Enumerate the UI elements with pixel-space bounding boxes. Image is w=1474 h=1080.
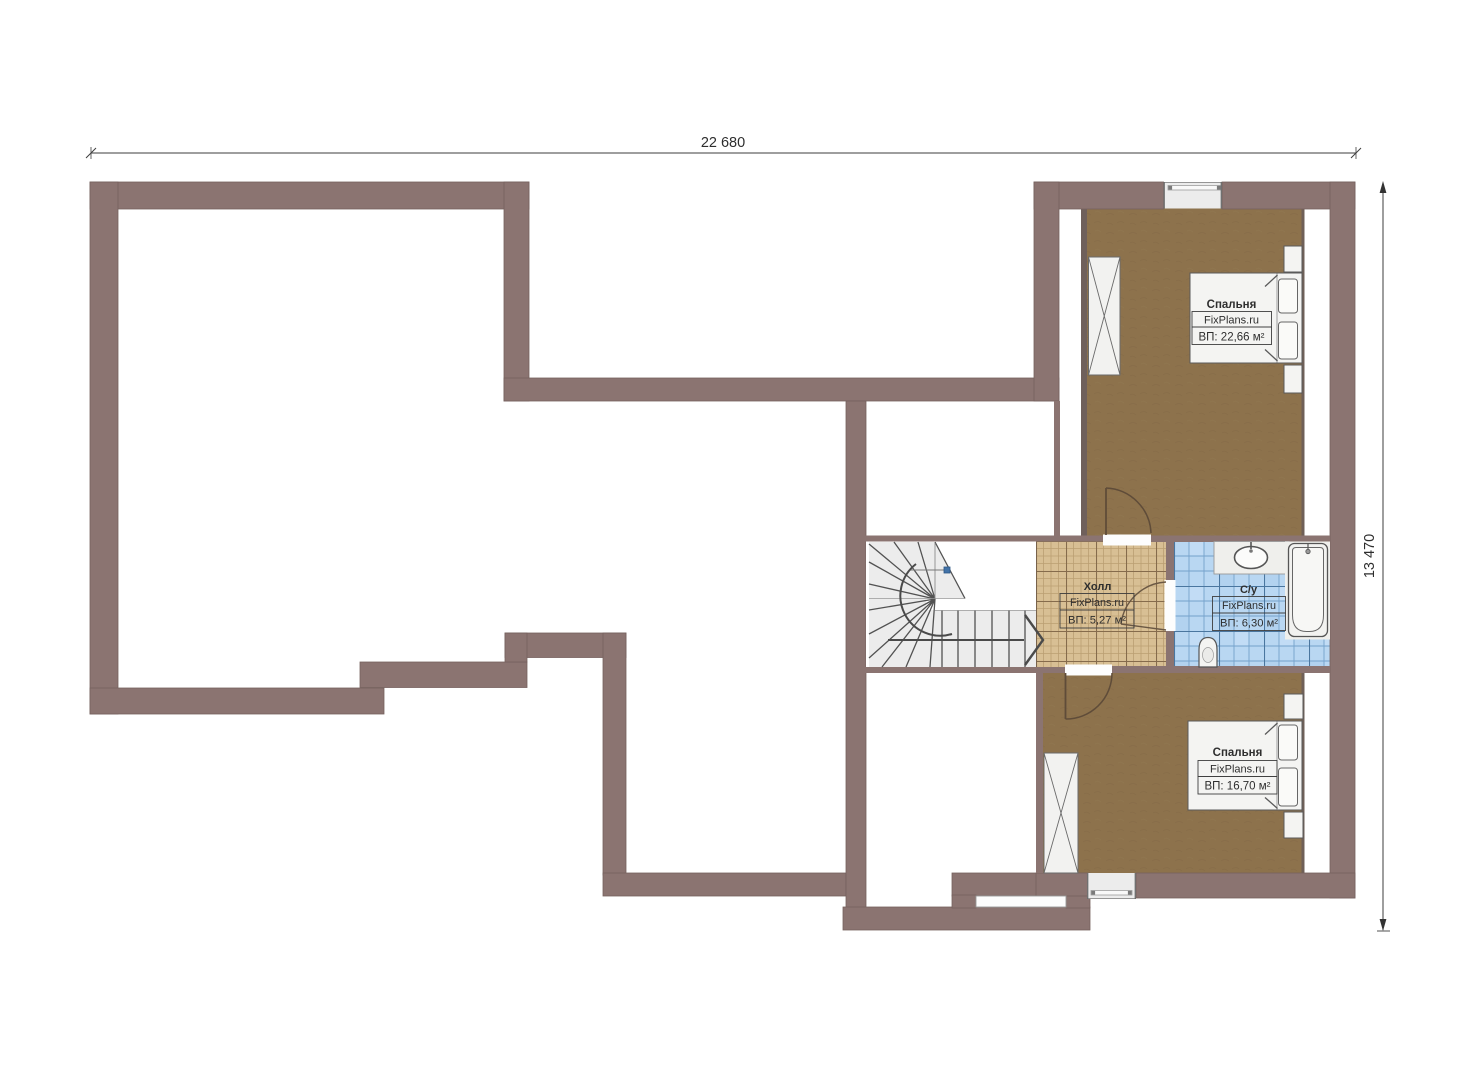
svg-text:ВП: 22,66 м²: ВП: 22,66 м² <box>1198 332 1264 344</box>
svg-text:13 470: 13 470 <box>1362 534 1378 578</box>
svg-text:FixPlans.ru: FixPlans.ru <box>1204 315 1259 327</box>
svg-text:ВП: 5,27 м²: ВП: 5,27 м² <box>1068 615 1126 627</box>
svg-text:22 680: 22 680 <box>701 135 745 151</box>
svg-text:С/у: С/у <box>1240 584 1258 596</box>
svg-text:FixPlans.ru: FixPlans.ru <box>1222 600 1276 612</box>
svg-text:FixPlans.ru: FixPlans.ru <box>1210 764 1265 776</box>
svg-text:Спальня: Спальня <box>1207 299 1257 311</box>
svg-text:ВП: 6,30 м²: ВП: 6,30 м² <box>1220 618 1278 630</box>
svg-text:Холл: Холл <box>1084 581 1112 593</box>
svg-text:Спальня: Спальня <box>1213 747 1263 759</box>
svg-text:FixPlans.ru: FixPlans.ru <box>1070 597 1124 609</box>
svg-text:ВП: 16,70 м²: ВП: 16,70 м² <box>1204 781 1270 793</box>
